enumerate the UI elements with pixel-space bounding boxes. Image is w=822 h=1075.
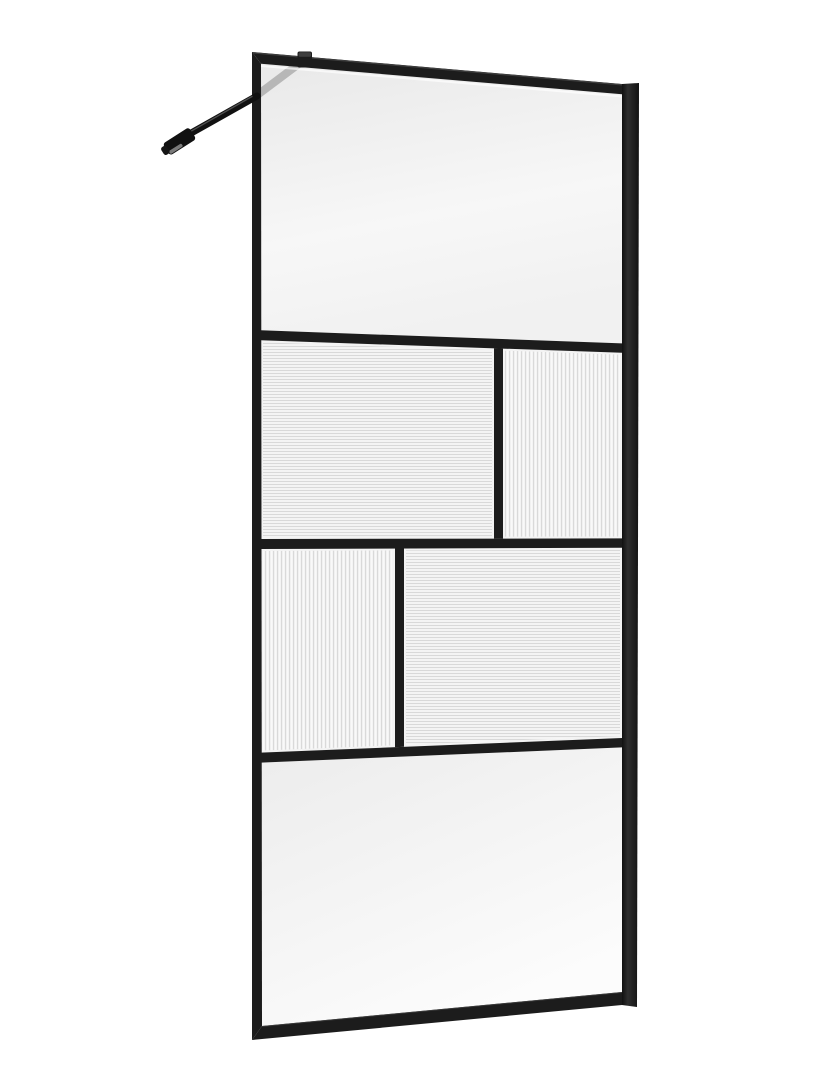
clear-glass-panel-bottom <box>261 747 622 1026</box>
fluted-panel-row2-right-vertical-ribs <box>503 349 622 539</box>
left-stile <box>252 52 262 1040</box>
wall-mounting-profile <box>622 83 639 1007</box>
shower-screen-illustration <box>0 0 822 1075</box>
glass-clamp-top-face <box>299 52 312 57</box>
horizontal-mullion-2 <box>261 538 622 549</box>
fluted-panel-row2-left-horizontal-ribs <box>261 340 494 539</box>
fluted-panel-row3-right-horizontal-ribs <box>404 548 622 747</box>
fluted-panel-row3-left-vertical-ribs <box>261 549 395 753</box>
vertical-mullion-row3 <box>395 548 404 747</box>
vertical-mullion-row2 <box>494 348 503 538</box>
product-photo-shower-screen <box>0 0 822 1075</box>
clear-glass-panel-top <box>261 64 622 344</box>
glass-clamp <box>298 52 313 68</box>
